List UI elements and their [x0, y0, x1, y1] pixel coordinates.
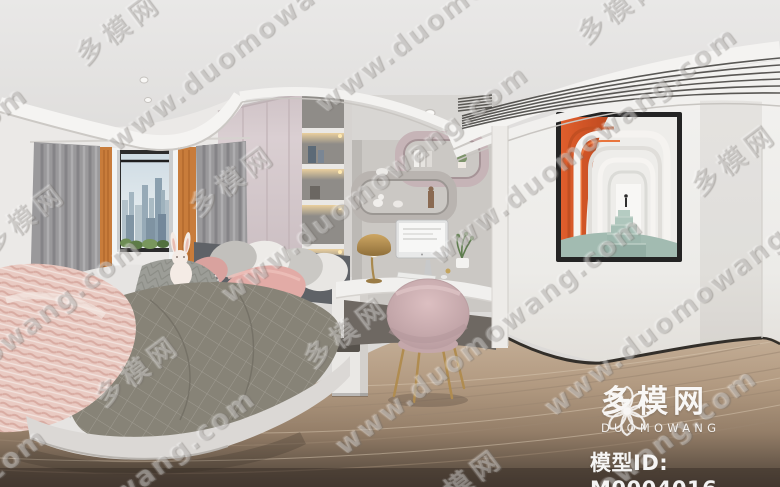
shelf-niche: [302, 95, 352, 277]
window-city-view: [120, 154, 169, 250]
mouse: [441, 275, 447, 279]
wall-art-arches: [556, 112, 682, 262]
right-wall-corner-shade: [700, 100, 762, 345]
model-id-label: 模型ID:: [590, 451, 668, 475]
desk-trinket: [446, 269, 451, 274]
model-id: 模型ID: M0004016: [590, 447, 780, 487]
site-name-latin: DUOMOWANG: [601, 421, 720, 435]
model-id-value: M0004016: [590, 477, 717, 487]
panorama-bedroom-scene: 多模网www.duomowang.com多模网www.duomowang.com…: [0, 0, 780, 487]
nook-pilaster: [492, 126, 508, 348]
site-logo: 多模网 DUOMOWANG: [601, 385, 720, 435]
